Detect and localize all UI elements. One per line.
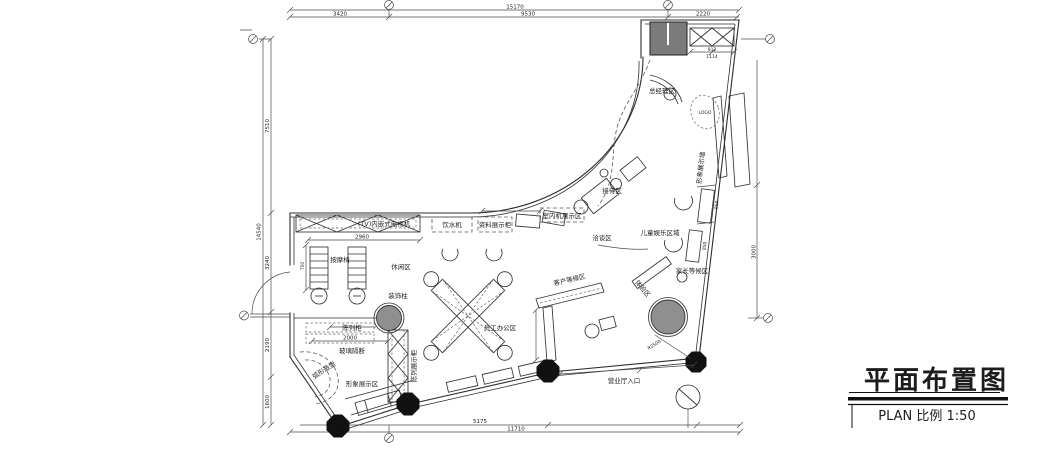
- label-waiting: 客户等候区: [553, 271, 587, 287]
- label-glass: 玻璃隔断: [339, 346, 366, 355]
- title-block: 平面布置图 PLAN 比例 1:50: [848, 366, 1009, 428]
- dim-cab-a: 912: [708, 47, 717, 53]
- dim-top-a: 3420: [333, 12, 347, 18]
- label-hatch-cab: 陈列展示柜: [409, 349, 418, 382]
- elevator-block: [650, 22, 687, 55]
- round-column-b: [651, 300, 685, 334]
- label-display-cab: 陈列柜: [342, 323, 362, 332]
- label-pillar: 装饰柱: [388, 291, 408, 300]
- massage-chairs: [303, 242, 366, 304]
- drawing-title: 平面布置图: [864, 366, 1009, 396]
- label-water: 饮水机: [442, 220, 462, 229]
- dim-seat-a: 850: [714, 200, 721, 209]
- leader-line: [598, 245, 648, 249]
- dim-top-b: 9530: [521, 12, 535, 18]
- gm-area: [598, 60, 724, 206]
- label-parents: 家长等候区: [676, 266, 709, 275]
- floor-plan-canvas: 15170 3420 9530 2220 14540 7510 3240 219…: [0, 0, 1060, 450]
- floor-plan-page: 15170 3420 9530 2220 14540 7510 3240 219…: [0, 0, 1060, 450]
- octagon-column: [397, 393, 419, 415]
- dim-right-a: 3000: [752, 245, 758, 259]
- drawing-scale: PLAN 比例 1:50: [878, 409, 975, 424]
- label-entrance: 营业厅入口: [608, 376, 641, 385]
- title-rule-thick: [848, 397, 1008, 401]
- label-talk: 洽谈区: [592, 233, 612, 242]
- dim-top-c: 2220: [696, 12, 710, 18]
- label-tv: (TV)内嵌式电视机: [358, 219, 411, 228]
- dim-bottom-total: 11710: [507, 427, 525, 433]
- label-experience: 体验区: [633, 278, 653, 299]
- label-office: 员工办公区: [484, 323, 517, 332]
- display-wall: [713, 93, 750, 187]
- label-reception: 接待区: [602, 186, 622, 195]
- label-wall-disp: 形象展示墙: [694, 151, 707, 185]
- divider-cabinet: [388, 330, 408, 402]
- dim-left-d: 1600: [265, 395, 271, 409]
- reception-desks: [574, 157, 646, 214]
- octagon-column: [686, 352, 706, 372]
- dimension-lines-left: 14540 7510 3240 2190 1600: [240, 30, 274, 428]
- dim-top-total: 15170: [506, 5, 524, 11]
- dim-left-c: 2190: [265, 338, 271, 352]
- waiting-counter: [533, 283, 616, 363]
- label-gm: 总经理区: [649, 86, 676, 95]
- round-column-a: [377, 306, 402, 331]
- dimension-lines-top: 15170 3420 9530 2220: [287, 1, 742, 21]
- label-files: 资料展示柜: [479, 220, 512, 229]
- dim-bottom-a: 5175: [473, 419, 487, 425]
- grid-bubble-slash: [386, 2, 392, 8]
- dim-left-b: 3240: [265, 256, 271, 270]
- label-arc-shape: 弧形造型: [310, 359, 337, 381]
- dim-side-a: 700: [300, 262, 306, 271]
- octagon-column: [537, 360, 559, 382]
- dim-tv-width: 2960: [355, 235, 369, 241]
- radius-leader: [655, 335, 690, 358]
- dimension-lines-right: 3000: [741, 35, 775, 323]
- label-logo: LOGO: [699, 110, 712, 116]
- section-symbol: [676, 385, 700, 428]
- label-image-area: 形象展示区: [346, 379, 379, 388]
- left-door: [240, 272, 291, 320]
- label-massage: 按摩椅: [330, 255, 350, 264]
- columns: [327, 298, 706, 438]
- dim-partition: 2000: [343, 336, 357, 342]
- label-lounge: 休闲区: [391, 262, 411, 271]
- dim-radius: R2500: [647, 339, 663, 352]
- dim-cab-b: 1114: [706, 54, 718, 60]
- dimension-lines-bottom: 5175 11710: [287, 419, 743, 443]
- dim-left-total: 14540: [257, 223, 263, 241]
- dim-left-a: 7510: [265, 119, 271, 133]
- label-kids: 儿童娱乐区域: [641, 228, 681, 237]
- octagon-column: [327, 415, 349, 437]
- dim-seat-b: 850: [702, 241, 709, 250]
